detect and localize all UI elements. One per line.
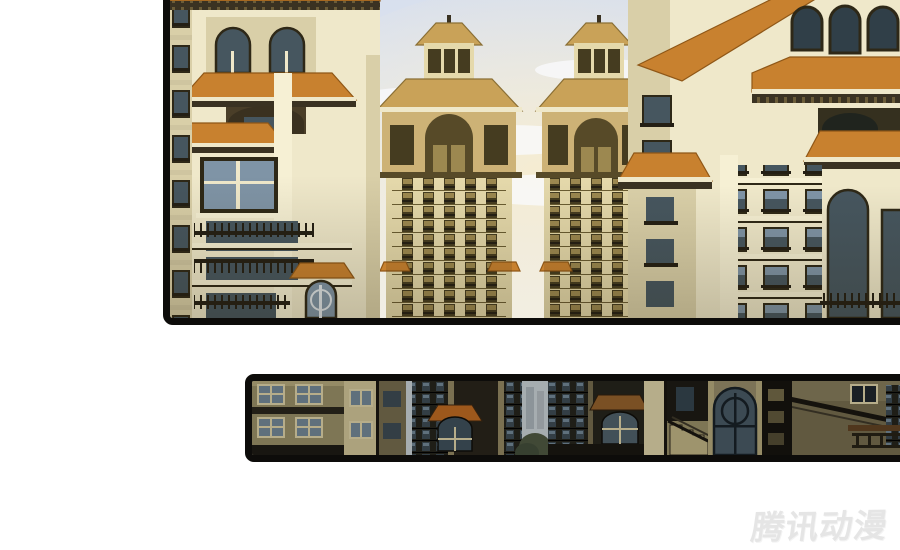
panel-top-cityscape [163, 0, 900, 325]
street-scene [252, 381, 900, 455]
street-illustration [252, 381, 900, 455]
comic-page: 腾讯动漫 [0, 0, 900, 550]
left-building [170, 0, 380, 318]
right-building [618, 0, 900, 318]
cityscape-illustration [170, 0, 900, 318]
tencent-comics-watermark: 腾讯动漫 [736, 499, 900, 550]
panel-bottom-street-strip [245, 374, 900, 462]
